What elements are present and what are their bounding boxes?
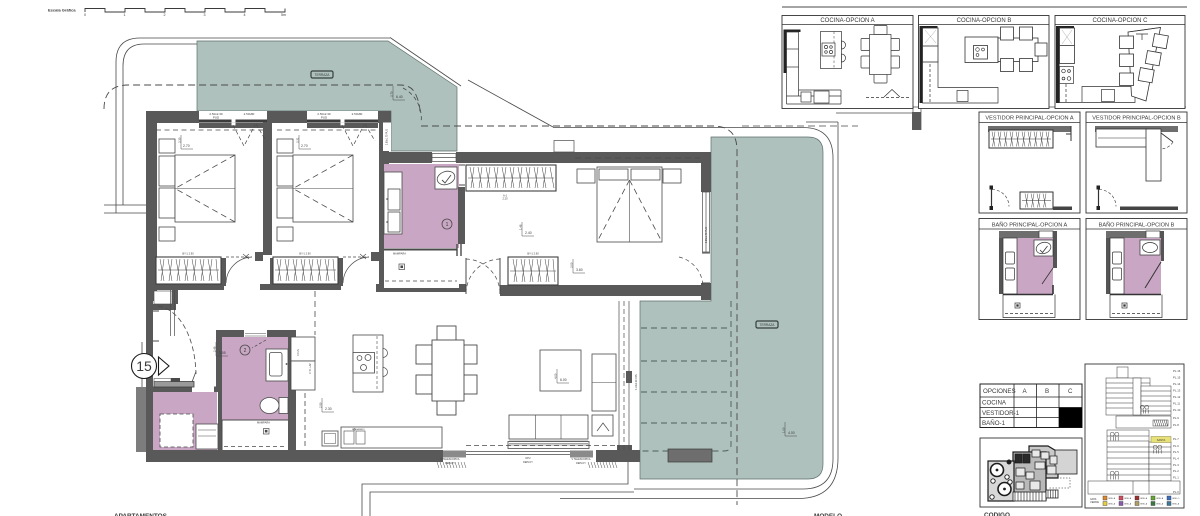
svg-text:GRILLA: GRILLA xyxy=(1156,503,1164,506)
svg-text:PL.1: PL.1 xyxy=(1173,476,1179,480)
svg-text:FREGADERO: FREGADERO xyxy=(352,428,365,431)
svg-text:2.48: 2.48 xyxy=(213,346,217,352)
svg-text:6.40: 6.40 xyxy=(396,95,403,99)
svg-text:GRILLA: GRILLA xyxy=(1140,503,1148,506)
svg-text:GRILLA: GRILLA xyxy=(1156,497,1164,500)
svg-text:GRILLA: GRILLA xyxy=(1124,503,1132,506)
svg-text:PL.3: PL.3 xyxy=(1173,463,1179,467)
svg-text:VESTIDOR PRINCIPAL-OPCION A: VESTIDOR PRINCIPAL-OPCION A xyxy=(985,116,1073,122)
svg-text:VESTIDOR-1: VESTIDOR-1 xyxy=(982,410,1020,417)
svg-text:PL.8: PL.8 xyxy=(1173,423,1179,427)
svg-text:C.T.I. LAV: C.T.I. LAV xyxy=(309,363,312,374)
svg-text:1: 1 xyxy=(446,222,449,228)
svg-text:4.00: 4.00 xyxy=(788,431,795,435)
svg-text:2.85x1.70 PUD: 2.85x1.70 PUD xyxy=(386,129,389,145)
svg-text:2.70: 2.70 xyxy=(301,144,308,148)
svg-text:1.48: 1.48 xyxy=(519,224,523,230)
svg-text:PL.6: PL.6 xyxy=(1173,444,1179,448)
svg-text:2.50x80: 2.50x80 xyxy=(244,112,255,116)
svg-text:PL.5: PL.5 xyxy=(1173,450,1179,454)
svg-text:BY-1 2.90: BY-1 2.90 xyxy=(299,252,311,256)
svg-text:COCINA-OPCION A: COCINA-OPCION A xyxy=(820,18,874,24)
svg-text:PL.4: PL.4 xyxy=(1173,457,1179,461)
svg-text:TERRAZA: TERRAZA xyxy=(315,73,331,77)
svg-text:BY-1 2.90: BY-1 2.90 xyxy=(527,252,539,256)
svg-text:PL.9: PL.9 xyxy=(1173,416,1179,420)
svg-text:3.31: 3.31 xyxy=(296,137,300,143)
svg-text:1.55: 1.55 xyxy=(219,351,226,355)
svg-text:3: 3 xyxy=(204,13,206,17)
svg-text:VERDE: VERDE xyxy=(1090,500,1099,504)
svg-text:PL.13: PL.13 xyxy=(1173,389,1181,393)
svg-text:COCINA-OPCION B: COCINA-OPCION B xyxy=(957,18,1012,24)
svg-text:2: 2 xyxy=(244,348,247,354)
svg-text:CODIGO: CODIGO xyxy=(984,512,1010,516)
svg-text:3.00: 3.00 xyxy=(570,262,574,268)
svg-text:5m: 5m xyxy=(281,13,286,17)
svg-text:PUD: PUD xyxy=(321,115,328,119)
svg-text:3.70: 3.70 xyxy=(390,91,394,97)
svg-text:B: B xyxy=(1045,388,1049,395)
svg-text:GRILLA: GRILLA xyxy=(1172,503,1180,506)
svg-text:0: 0 xyxy=(84,13,86,17)
svg-text:COCINA-OPCION C: COCINA-OPCION C xyxy=(1092,18,1148,24)
svg-text:PL.14: PL.14 xyxy=(1173,382,1181,386)
svg-text:DPU: DPU xyxy=(525,457,530,460)
svg-text:3.30: 3.30 xyxy=(178,137,182,143)
svg-text:TERRAZA: TERRAZA xyxy=(760,323,776,327)
svg-text:PL.2: PL.2 xyxy=(1173,469,1179,473)
svg-text:15: 15 xyxy=(136,358,152,374)
svg-text:2.85x1.70 PUD: 2.85x1.70 PUD xyxy=(705,227,708,243)
svg-text:2.40: 2.40 xyxy=(525,231,532,235)
svg-text:BAÑO-1: BAÑO-1 xyxy=(982,420,1006,427)
svg-text:6.00: 6.00 xyxy=(560,378,567,382)
svg-text:V TELESCOPICA: V TELESCOPICA xyxy=(572,458,591,461)
svg-text:2.90: 2.90 xyxy=(319,402,323,408)
svg-text:VESTIDOR PRINCIPAL-OPCION B: VESTIDOR PRINCIPAL-OPCION B xyxy=(1092,116,1181,122)
svg-text:F/CLN: F/CLN xyxy=(297,349,300,356)
svg-text:2.50x80: 2.50x80 xyxy=(352,112,363,116)
svg-text:PL.10: PL.10 xyxy=(1173,408,1181,412)
svg-text:PL.12: PL.12 xyxy=(1173,395,1181,399)
svg-text:4.10x2.30 DPU: 4.10x2.30 DPU xyxy=(635,374,638,390)
svg-text:GRILLA: GRILLA xyxy=(1140,497,1148,500)
svg-text:PL.11: PL.11 xyxy=(1173,402,1181,406)
svg-text:2.70: 2.70 xyxy=(183,144,190,148)
svg-text:1: 1 xyxy=(124,13,126,17)
svg-text:C: C xyxy=(1068,388,1073,395)
svg-text:4: 4 xyxy=(244,13,246,17)
svg-text:1.60: 1.60 xyxy=(782,427,786,433)
svg-text:V TELESCOPICA: V TELESCOPICA xyxy=(441,458,460,461)
svg-text:DEPLOY: DEPLOY xyxy=(576,462,586,465)
svg-text:PL.15: PL.15 xyxy=(1173,376,1181,380)
svg-text:3.60: 3.60 xyxy=(576,268,583,272)
svg-text:OPCIONES: OPCIONES xyxy=(983,388,1016,395)
svg-text:2.20: 2.20 xyxy=(502,197,508,201)
svg-text:PL.16: PL.16 xyxy=(1173,369,1181,373)
svg-text:Escala Gráfica: Escala Gráfica xyxy=(48,8,76,13)
svg-text:GRILLA: GRILLA xyxy=(1108,497,1116,500)
svg-text:BY-1 2.90: BY-1 2.90 xyxy=(182,252,194,256)
svg-text:2: 2 xyxy=(164,13,166,17)
svg-text:COCINA: COCINA xyxy=(982,400,1007,407)
svg-text:MAMPARA: MAMPARA xyxy=(257,421,270,425)
svg-text:2.30: 2.30 xyxy=(325,407,332,411)
svg-text:PUD: PUD xyxy=(213,115,220,119)
svg-text:PL.7: PL.7 xyxy=(1173,437,1179,441)
svg-text:PL.0: PL.0 xyxy=(1173,490,1179,494)
svg-text:4.00: 4.00 xyxy=(554,373,558,379)
svg-text:BAÑO PRINCIPAL-OPCION A: BAÑO PRINCIPAL-OPCION A xyxy=(992,222,1068,229)
svg-text:GRILLO: GRILLO xyxy=(1172,498,1180,500)
svg-text:GRILLA: GRILLA xyxy=(1124,497,1132,500)
svg-text:DEPLOY: DEPLOY xyxy=(523,461,533,464)
svg-text:GRILLA: GRILLA xyxy=(1108,503,1116,506)
svg-text:SANTA: SANTA xyxy=(1157,438,1166,442)
svg-text:BAÑO PRINCIPAL-OPCION B: BAÑO PRINCIPAL-OPCION B xyxy=(1099,222,1175,229)
svg-text:MAMPARA: MAMPARA xyxy=(393,252,406,256)
